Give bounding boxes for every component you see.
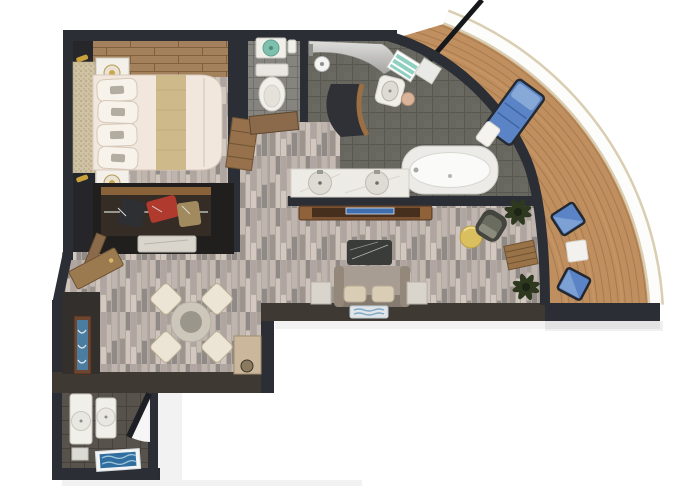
- wall-bedroom-right: [228, 30, 248, 122]
- hanging-clothes-dark: [118, 198, 146, 228]
- bath-mat: [95, 448, 140, 471]
- faucet-icon: [374, 170, 380, 174]
- toilet-seat: [264, 85, 280, 107]
- double-vanity: [291, 169, 409, 197]
- floorplan-canvas: [0, 0, 680, 487]
- console-block: [420, 207, 431, 219]
- toilet-tank: [256, 64, 288, 76]
- deck-table: [566, 240, 589, 263]
- wall-bedroom-dark-nook: [73, 185, 95, 252]
- bathtub: [402, 146, 498, 194]
- tv-screen: [346, 208, 394, 214]
- tub-faucet: [414, 168, 419, 173]
- table-center: [180, 311, 202, 333]
- powder-shelf: [72, 448, 88, 460]
- side-table-right: [407, 282, 427, 304]
- suite-floorplan: [0, 0, 680, 487]
- soap-dish: [288, 40, 296, 53]
- framed-artwork: [74, 316, 91, 374]
- console-block: [300, 207, 312, 219]
- sofa-cushion: [372, 286, 394, 302]
- king-bed: [93, 75, 222, 170]
- bed-runner: [156, 75, 186, 170]
- tv-console: [299, 206, 432, 220]
- tub-basin: [410, 153, 490, 188]
- side-table-left: [311, 282, 331, 304]
- sofa: [334, 266, 410, 307]
- headboard-panel: [73, 62, 95, 173]
- hanging-clothes-tan: [176, 201, 201, 228]
- tub-drain: [448, 174, 452, 178]
- corridor-floor-2: [240, 172, 293, 198]
- cabinet-handle: [241, 360, 253, 372]
- faucet-icon: [317, 170, 323, 174]
- powder-fixture-left: [70, 394, 92, 444]
- shower-control: [309, 44, 313, 56]
- wall-entry-band: [52, 372, 274, 393]
- vanity-stool: [402, 93, 415, 106]
- wardrobe-shelf: [101, 187, 211, 195]
- sofa-cushion: [344, 286, 366, 302]
- minibar-cabinet: [234, 336, 261, 374]
- powder-fixture-right: [96, 398, 116, 438]
- doormat: [350, 306, 388, 318]
- sofa-armrest-left: [334, 266, 344, 307]
- wall-dining-east: [261, 320, 274, 393]
- wall-wc-right: [300, 30, 308, 122]
- wall-left: [63, 30, 73, 260]
- entry-hall: [74, 316, 91, 374]
